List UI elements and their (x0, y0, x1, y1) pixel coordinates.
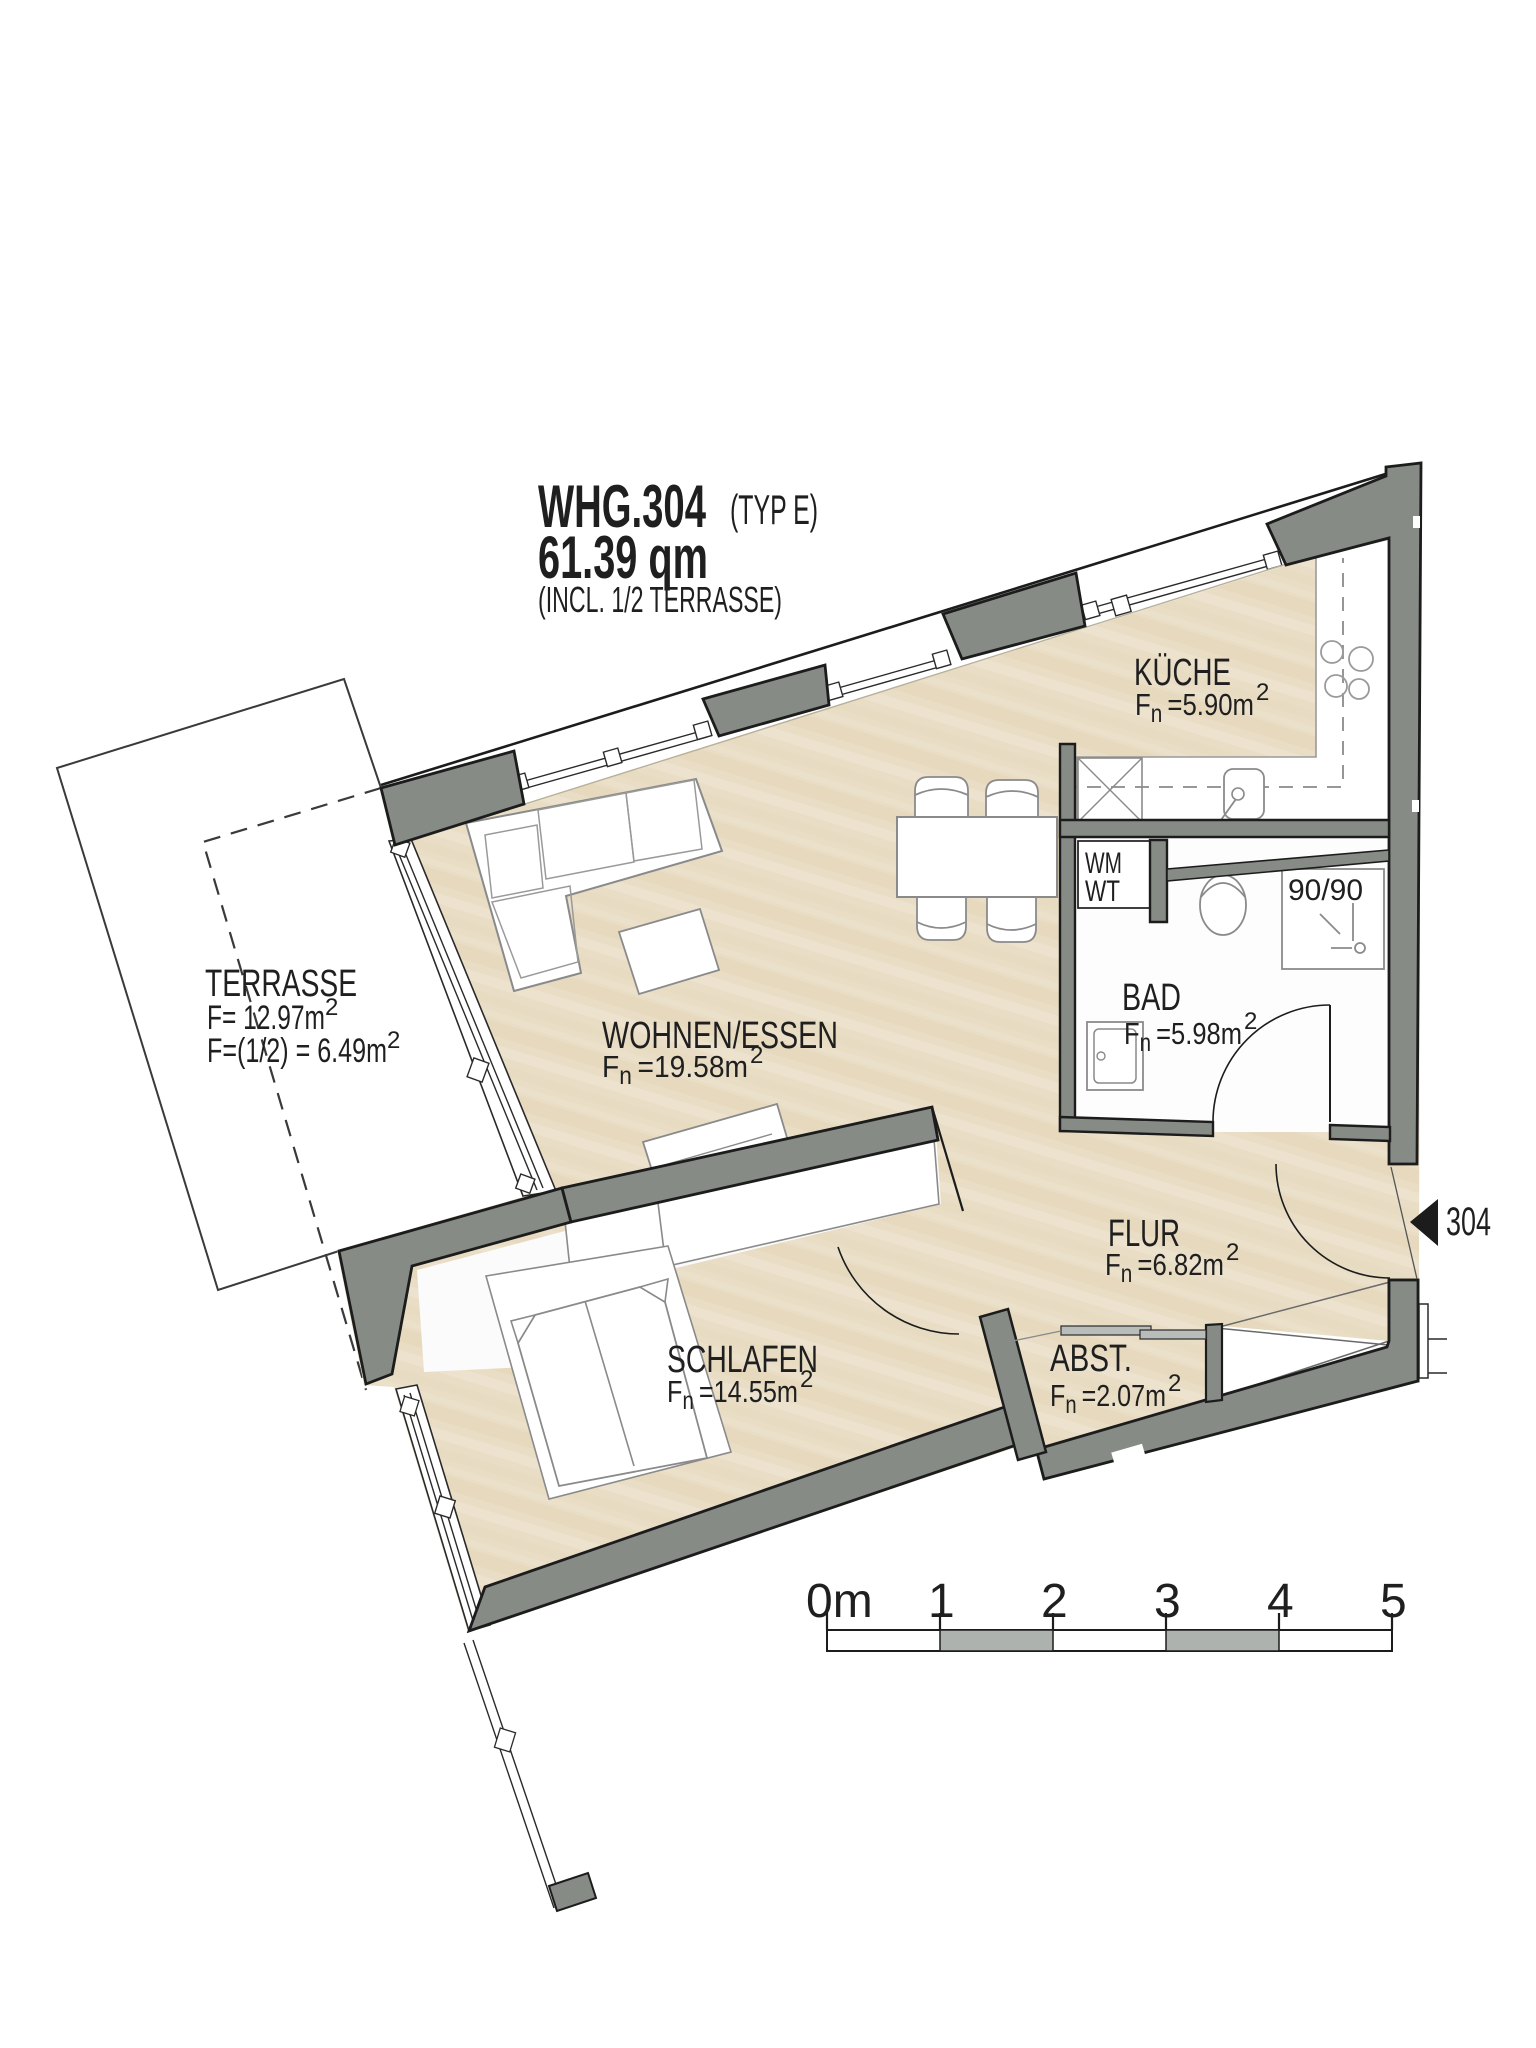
svg-text:2: 2 (325, 994, 338, 1021)
svg-text:4: 4 (1267, 1575, 1294, 1628)
svg-text:0m: 0m (806, 1575, 873, 1628)
svg-text:WT: WT (1085, 875, 1120, 908)
svg-text:304: 304 (1446, 1200, 1491, 1244)
svg-text:2: 2 (1244, 1008, 1257, 1035)
svg-text:(INCL. 1/2 TERRASSE): (INCL. 1/2 TERRASSE) (538, 579, 782, 620)
svg-text:2: 2 (1041, 1575, 1068, 1628)
svg-text:2: 2 (1256, 679, 1269, 706)
svg-text:2: 2 (750, 1042, 763, 1069)
svg-text:1: 1 (928, 1575, 955, 1628)
svg-text:3: 3 (1154, 1575, 1181, 1628)
svg-text:F=(1/2) = 6.49m: F=(1/2) = 6.49m (207, 1032, 387, 1070)
svg-text:BAD: BAD (1122, 977, 1181, 1019)
svg-text:(TYP E): (TYP E) (730, 486, 818, 533)
svg-text:ABST.: ABST. (1050, 1338, 1132, 1380)
svg-text:2: 2 (800, 1366, 813, 1393)
svg-text:90/90: 90/90 (1288, 874, 1363, 907)
svg-text:2: 2 (1226, 1239, 1239, 1266)
svg-text:5: 5 (1380, 1575, 1407, 1628)
svg-text:2: 2 (1168, 1370, 1181, 1397)
svg-text:2: 2 (387, 1027, 400, 1054)
